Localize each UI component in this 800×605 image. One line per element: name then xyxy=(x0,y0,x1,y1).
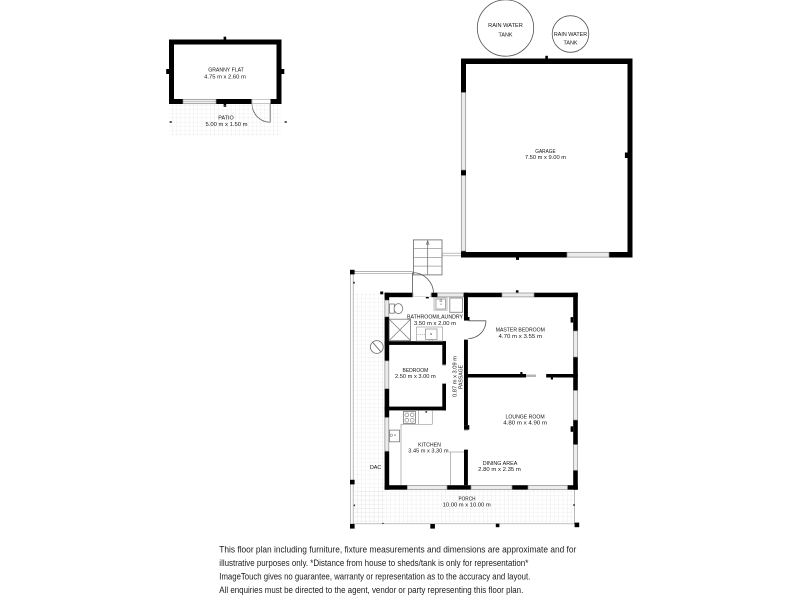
svg-text:10.00 m x 10.00 m: 10.00 m x 10.00 m xyxy=(443,503,492,509)
svg-text:BEDROOM: BEDROOM xyxy=(403,368,429,374)
svg-text:4.70 m x 3.55 m: 4.70 m x 3.55 m xyxy=(499,334,543,340)
svg-text:2.80 m x 2.35 m: 2.80 m x 2.35 m xyxy=(478,467,521,473)
svg-text:All enquiries must be directed: All enquiries must be directed to the ag… xyxy=(219,585,523,596)
svg-text:ImageTouch gives no guarantee,: ImageTouch gives no guarantee, warranty … xyxy=(219,572,530,583)
svg-text:4.80 m x 4.90 m: 4.80 m x 4.90 m xyxy=(503,421,547,427)
svg-text:PASSAGE: PASSAGE xyxy=(459,365,465,389)
svg-text:DAC: DAC xyxy=(370,465,382,471)
svg-text:BATHROOM/LAUNDRY: BATHROOM/LAUNDRY xyxy=(407,315,463,321)
svg-text:PORCH: PORCH xyxy=(459,496,476,502)
svg-text:2.50 m x 3.00 m: 2.50 m x 3.00 m xyxy=(395,374,436,380)
svg-text:PATIO: PATIO xyxy=(218,115,234,121)
svg-text:5.00 m x 1.50 m: 5.00 m x 1.50 m xyxy=(206,122,249,128)
svg-text:7.50 m x 9.00 m: 7.50 m x 9.00 m xyxy=(525,155,567,161)
svg-text:0.87 m x 3.09 m: 0.87 m x 3.09 m xyxy=(452,355,458,397)
svg-text:illustrative purposes only. *D: illustrative purposes only. *Distance fr… xyxy=(219,558,528,569)
svg-text:GRANNY FLAT: GRANNY FLAT xyxy=(208,68,244,74)
svg-text:MASTER BEDROOM: MASTER BEDROOM xyxy=(496,327,546,333)
svg-text:RAIN WATER: RAIN WATER xyxy=(554,32,587,38)
svg-text:RAIN WATER: RAIN WATER xyxy=(488,23,523,29)
svg-text:GARAGE: GARAGE xyxy=(535,149,556,155)
svg-text:4.75 m x 2.60 m: 4.75 m x 2.60 m xyxy=(204,74,246,80)
svg-text:This floor plan including furn: This floor plan including furniture, fix… xyxy=(219,545,577,556)
svg-text:3.45 m x 3.30 m: 3.45 m x 3.30 m xyxy=(408,448,449,454)
svg-text:3.50 m x 2.00 m: 3.50 m x 2.00 m xyxy=(414,321,457,327)
svg-text:TANK: TANK xyxy=(499,33,513,39)
svg-text:TANK: TANK xyxy=(564,41,578,47)
